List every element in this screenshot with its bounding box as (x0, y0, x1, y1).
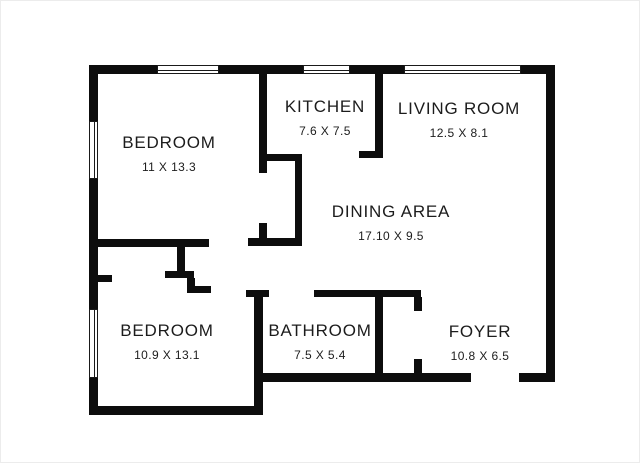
wall-segment (187, 286, 211, 293)
room-name-foyer: FOYER (449, 322, 512, 342)
room-dimensions-living-room: 12.5 X 8.1 (398, 125, 520, 141)
room-name-bedroom-1: BEDROOM (122, 133, 215, 153)
room-dimensions-bedroom-1: 11 X 13.3 (122, 159, 215, 175)
room-name-bathroom: BATHROOM (268, 321, 371, 341)
room-label-living-room: LIVING ROOM 12.5 X 8.1 (398, 99, 520, 141)
wall-segment (89, 406, 263, 415)
wall-segment (165, 271, 194, 278)
floor-plan: BEDROOM 11 X 13.3 KITCHEN 7.6 X 7.5 LIVI… (1, 1, 639, 462)
wall-segment (177, 246, 185, 273)
room-dimensions-foyer: 10.8 X 6.5 (449, 348, 512, 364)
room-name-dining-area: DINING AREA (332, 202, 450, 222)
wall-segment (246, 290, 269, 297)
wall-segment (248, 238, 302, 246)
room-name-living-room: LIVING ROOM (398, 99, 520, 119)
wall-segment (414, 359, 422, 373)
wall-segment (254, 290, 263, 415)
wall-segment (314, 290, 421, 297)
wall-segment (375, 74, 383, 158)
wall-segment (414, 297, 422, 311)
room-label-kitchen: KITCHEN 7.6 X 7.5 (285, 97, 365, 139)
room-dimensions-bedroom-2: 10.9 X 13.1 (120, 347, 213, 363)
window (303, 65, 350, 74)
room-dimensions-dining-area: 17.10 X 9.5 (332, 228, 450, 244)
wall-segment (259, 223, 267, 241)
room-label-bathroom: BATHROOM 7.5 X 5.4 (268, 321, 371, 363)
wall-segment (89, 239, 209, 247)
window (89, 309, 98, 378)
wall-segment (375, 297, 383, 373)
wall-segment (546, 65, 555, 382)
wall-segment (98, 275, 112, 282)
room-name-kitchen: KITCHEN (285, 97, 365, 117)
wall-segment (254, 373, 471, 382)
room-name-bedroom-2: BEDROOM (120, 321, 213, 341)
room-label-bedroom-2: BEDROOM 10.9 X 13.1 (120, 321, 213, 363)
wall-segment (359, 151, 383, 158)
wall-segment (295, 154, 302, 245)
room-label-dining-area: DINING AREA 17.10 X 9.5 (332, 202, 450, 244)
room-dimensions-kitchen: 7.6 X 7.5 (285, 123, 365, 139)
room-dimensions-bathroom: 7.5 X 5.4 (268, 347, 371, 363)
room-label-bedroom-1: BEDROOM 11 X 13.3 (122, 133, 215, 175)
floorplan-canvas: BEDROOM 11 X 13.3 KITCHEN 7.6 X 7.5 LIVI… (0, 0, 640, 463)
wall-segment (519, 373, 555, 382)
window (157, 65, 219, 74)
room-label-foyer: FOYER 10.8 X 6.5 (449, 322, 512, 364)
window (89, 121, 98, 179)
window (404, 65, 521, 74)
